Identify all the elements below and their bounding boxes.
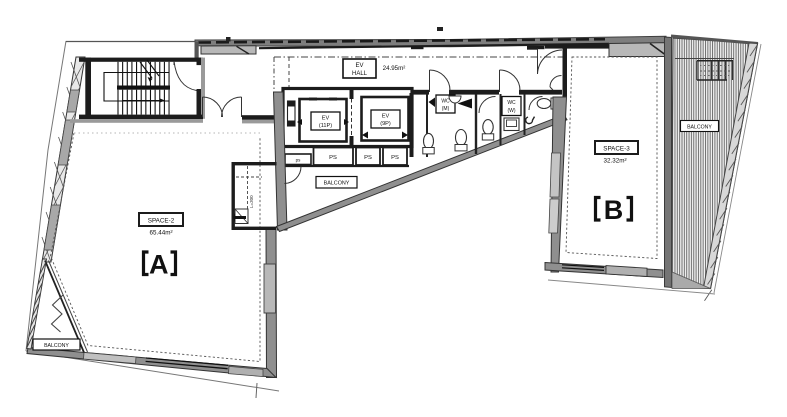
svg-text:L=300: L=300: [249, 195, 254, 208]
svg-text:BALCONY: BALCONY: [44, 343, 69, 349]
svg-text:(9P): (9P): [380, 121, 391, 127]
svg-text:A: A: [149, 250, 169, 280]
svg-text:EV: EV: [382, 114, 390, 120]
svg-text:PS: PS: [391, 155, 399, 161]
svg-text:B: B: [604, 195, 624, 225]
svg-text:BALCONY: BALCONY: [324, 181, 350, 187]
svg-text:BALCONY: BALCONY: [687, 125, 712, 131]
svg-text:65.44m²: 65.44m²: [149, 230, 172, 237]
svg-text:SPACE-2: SPACE-2: [148, 218, 175, 225]
svg-text:SPACE-3: SPACE-3: [603, 146, 630, 153]
svg-text:WC: WC: [507, 100, 516, 106]
svg-text:(11P): (11P): [319, 123, 332, 129]
svg-text:WC: WC: [441, 99, 450, 105]
svg-text:HALL: HALL: [352, 71, 368, 77]
svg-text:(M): (M): [442, 106, 450, 112]
svg-text:PS: PS: [364, 155, 372, 161]
svg-text:ps: ps: [296, 158, 302, 163]
svg-text:EV: EV: [355, 63, 363, 69]
svg-text:PS: PS: [329, 155, 337, 161]
svg-text:(W): (W): [507, 108, 515, 114]
svg-text:32.32m²: 32.32m²: [603, 158, 626, 165]
svg-text:EV: EV: [322, 116, 330, 122]
svg-text:24.95m²: 24.95m²: [383, 65, 406, 72]
